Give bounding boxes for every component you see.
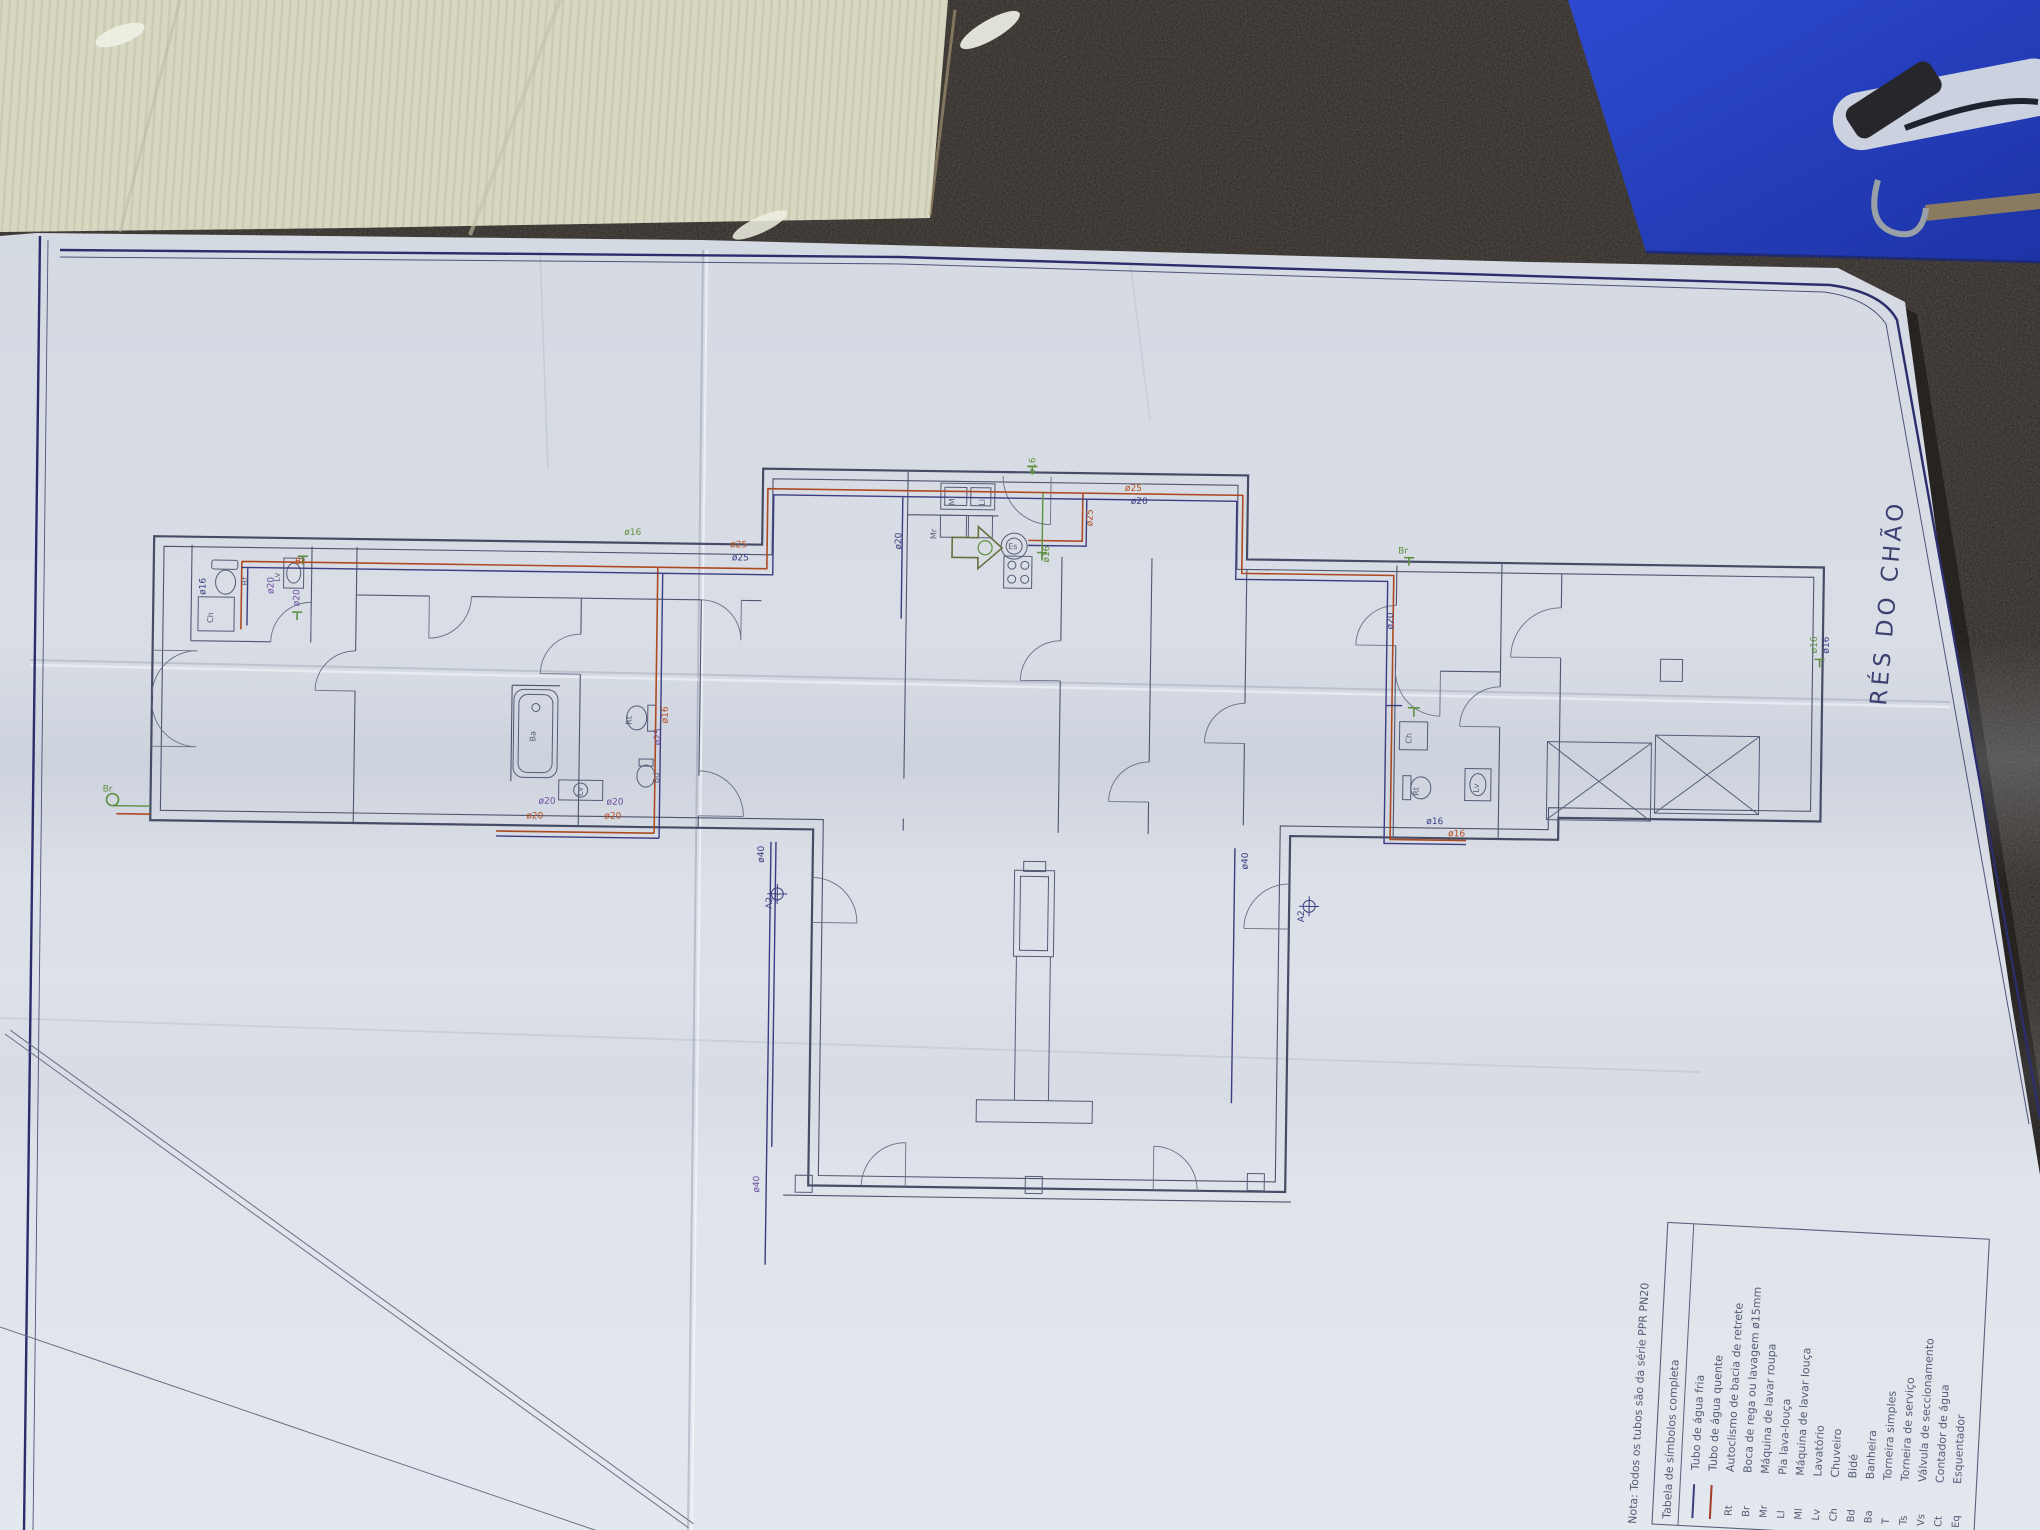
legend-row-label: Bidé [1846, 1454, 1860, 1479]
legend-row-label: Lavatório [1811, 1425, 1827, 1477]
fixture-label: Br [1398, 547, 1408, 557]
fixture-label: Rt [241, 577, 250, 586]
fixture-label: Rt [625, 716, 634, 725]
pipe-label: ø16 [1448, 829, 1465, 839]
pipe-label: ø16 [1028, 457, 1038, 474]
legend-row-symbol: Lv [1811, 1509, 1823, 1521]
pipe-label: ø20 [606, 798, 623, 808]
pipe-label: ø25 [730, 540, 747, 550]
fixture-label: Mr [929, 528, 938, 539]
section-label: A2 [1297, 910, 1307, 922]
legend-row-symbol: Ml [1793, 1508, 1805, 1520]
pipe-label: ø25 [732, 553, 749, 563]
legend-row-symbol: Ct [1933, 1516, 1945, 1528]
pipe-label: ø16 [1426, 817, 1443, 827]
photo-of-floorplan: ø16 ø20 ø20 ø25 ø25 ø16 ø20 ø25 ø25 ø20 … [0, 0, 2040, 1530]
fixture-label: Ch [206, 612, 215, 623]
pipe-label: ø20 [604, 811, 621, 821]
pipe-label: ø40 [752, 1175, 762, 1192]
fixture-label: Ba [528, 731, 537, 742]
pipe-label: ø20 [894, 532, 904, 549]
pipe-label: ø20 [1386, 612, 1396, 629]
pipe-label: ø25 [1125, 484, 1142, 494]
legend-row-symbol: Rt [1724, 1505, 1736, 1517]
fixture-label: Ll [978, 499, 987, 506]
legend-row-symbol: Ll [1776, 1510, 1787, 1519]
legend-row-symbol: Eq [1951, 1515, 1963, 1528]
legend-row-symbol: Mr [1758, 1504, 1770, 1518]
fixture-label: Rt [1412, 787, 1421, 796]
blue-clipboard [1568, 0, 2040, 262]
pipe-label: ø16 [198, 578, 208, 595]
legend-row-symbol: Ts [1898, 1515, 1910, 1526]
pipe-label: ø20 [292, 589, 302, 606]
legend-row-symbol: Bd [1846, 1509, 1858, 1523]
legend-row-label: Chuveiro [1829, 1428, 1845, 1478]
pipe-label: ø20 [538, 797, 555, 807]
pipe-label: ø16 [1810, 636, 1820, 653]
legend-row-symbol: Ba [1863, 1510, 1875, 1524]
legend-row-symbol: Vs [1916, 1514, 1928, 1527]
pipe-label: ø25 [653, 728, 663, 745]
plan-sheet: ø16 ø20 ø20 ø25 ø25 ø16 ø20 ø25 ø25 ø20 … [0, 233, 2040, 1530]
pipe-label: ø40 [757, 845, 767, 862]
pipe-label: ø40 [1241, 852, 1251, 869]
fixture-label: Br [295, 557, 305, 567]
fixture-label: Lv [576, 787, 585, 797]
pipe-label: ø25 [1085, 509, 1095, 526]
fixture-label: Lv [1472, 783, 1481, 793]
fixture-label: Br [103, 784, 113, 794]
legend-row-symbol: Br [1741, 1505, 1753, 1517]
fixture-label: Ch [1404, 733, 1413, 744]
pipe-label: ø16 [624, 528, 641, 538]
section-label: A2 [765, 897, 775, 909]
pipe-label: ø20 [526, 811, 543, 821]
legend-row-label: Banheira [1864, 1430, 1880, 1480]
pipe-label: ø20 [1131, 497, 1148, 507]
legend-row-symbol: Ch [1828, 1508, 1840, 1522]
pipe-label: ø16 [661, 706, 671, 723]
fixture-label: Es [1008, 542, 1017, 551]
fixture-label: Ml [948, 496, 957, 505]
pipe-label: ø16 [1822, 636, 1832, 653]
fixture-label: Lv [273, 572, 282, 582]
pipe-label: ø16 [1042, 545, 1052, 562]
fixture-label: Bd [652, 773, 661, 784]
